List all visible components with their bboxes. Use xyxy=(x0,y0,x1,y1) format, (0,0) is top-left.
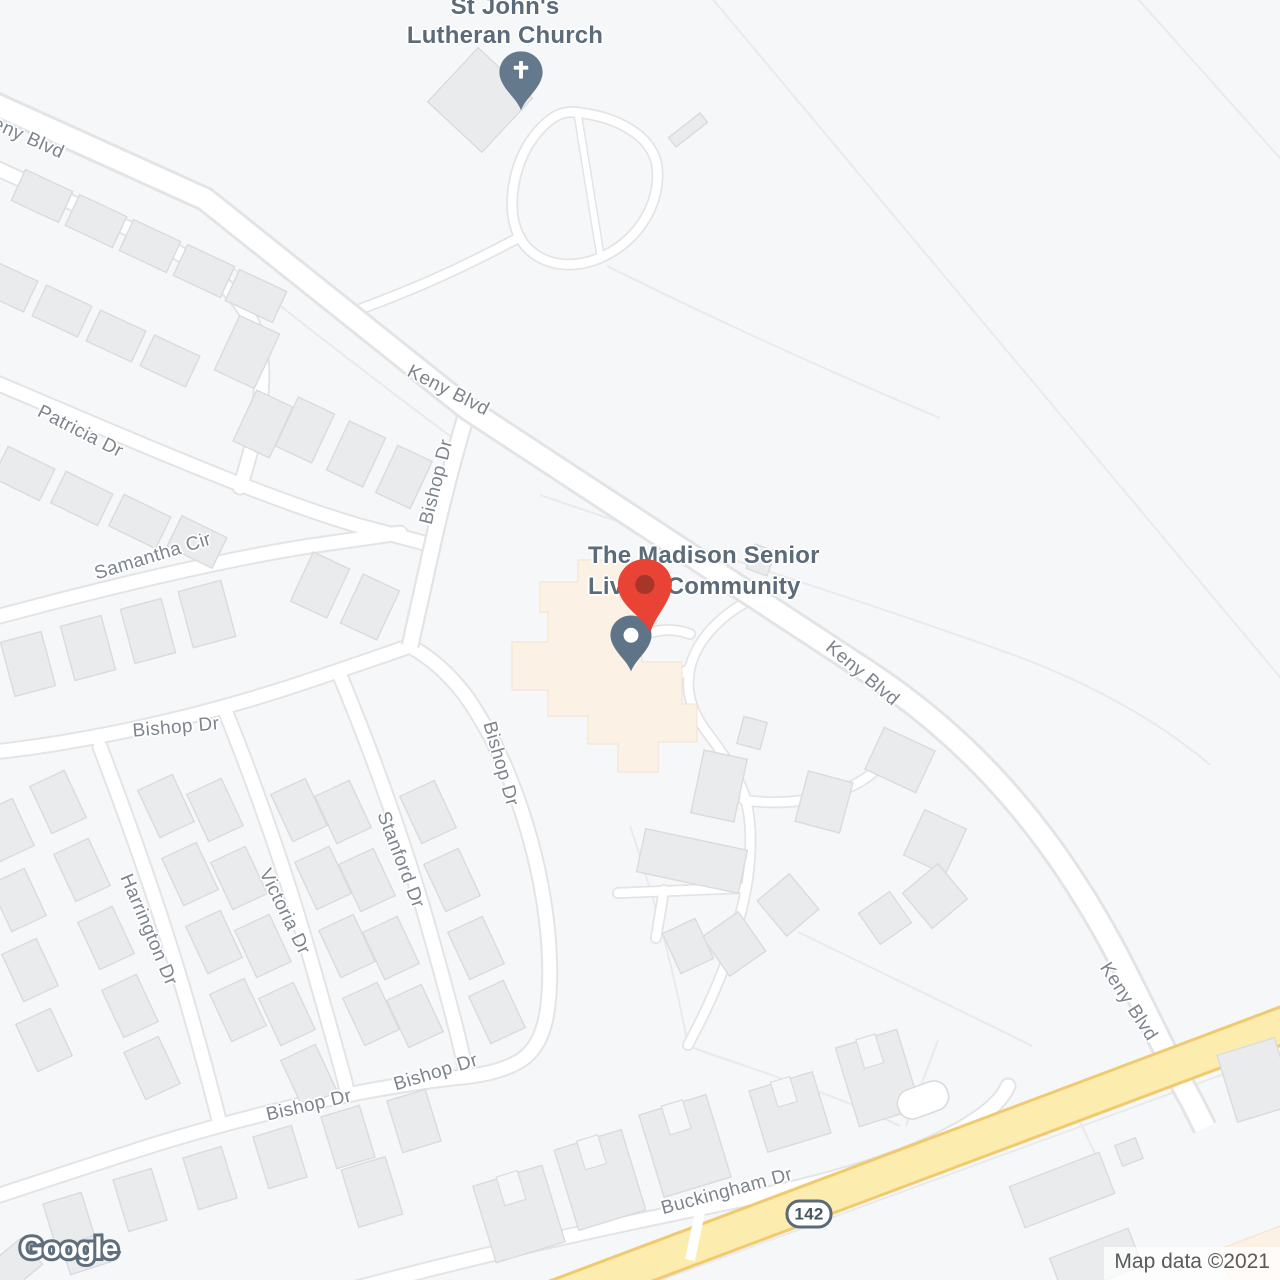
map-canvas[interactable]: Keny BlvdKeny BlvdKeny BlvdKeny BlvdBish… xyxy=(0,0,1280,1280)
church-pin-icon[interactable] xyxy=(499,51,542,110)
markers-layer xyxy=(0,0,1280,1280)
map-attribution: Map data ©2021 xyxy=(1104,1247,1280,1280)
google-watermark[interactable]: Google xyxy=(20,1232,117,1266)
